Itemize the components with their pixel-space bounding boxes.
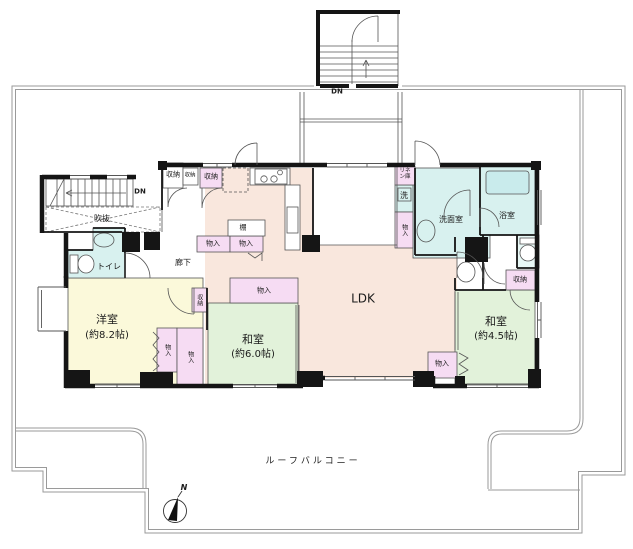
entrance-door bbox=[415, 141, 440, 165]
stairs-down-label: DN bbox=[331, 88, 343, 97]
storage-label-monoire: 物入 bbox=[239, 240, 253, 249]
room-label-rouka: 廊下 bbox=[175, 258, 191, 268]
basin-icon bbox=[457, 262, 475, 282]
closet-door bbox=[168, 188, 187, 207]
storage-label-shuno: 収納 bbox=[184, 173, 195, 180]
kitchen-door bbox=[235, 143, 257, 165]
shelf-label: 棚 bbox=[240, 224, 247, 233]
room-label-senmenshitsu: 洗面室 bbox=[439, 215, 463, 225]
storage-label-monoire: 物入 bbox=[186, 351, 194, 363]
compass-north-label: N bbox=[181, 483, 188, 493]
storage-label-monoire: 物入 bbox=[257, 287, 271, 296]
room-label-yoshitsu: 洋室 bbox=[96, 313, 118, 327]
room-label-yokushitsu: 浴室 bbox=[499, 211, 515, 221]
storage-label-shuno: 収納 bbox=[166, 171, 180, 180]
room-size-yoshitsu: (約8.2帖) bbox=[85, 330, 129, 343]
room-label-ldk: LDK bbox=[351, 292, 375, 307]
room-label-fukinuke: 吹抜 bbox=[94, 214, 110, 224]
room-label-washer: 洗 bbox=[400, 191, 408, 201]
room-size-washitsu6: (約6.0帖) bbox=[231, 349, 275, 362]
room-label-toilet: トイレ bbox=[97, 262, 121, 272]
exterior-stairs bbox=[300, 8, 402, 165]
toilet2-door bbox=[484, 263, 505, 284]
storage-label-monoire: 物入 bbox=[435, 360, 449, 369]
room-size-washitsu45: (約4.5帖) bbox=[474, 331, 518, 344]
toilet-icon bbox=[520, 238, 536, 261]
storage-label-shuno: 収納 bbox=[195, 294, 203, 306]
room-label-linen: リネン庫 bbox=[397, 169, 413, 181]
toilet-door bbox=[125, 253, 150, 278]
storage-label-monoire: 物入 bbox=[206, 240, 220, 249]
toilet-icon bbox=[70, 255, 94, 273]
floor-plan: LDK 洋室 (約8.2帖) 和室 (約6.0帖) 和室 (約4.5帖) トイレ… bbox=[0, 0, 633, 549]
room-label-washitsu6: 和室 bbox=[242, 333, 264, 347]
storage-label-monoire: 物入 bbox=[400, 224, 408, 236]
storage-label-monoire: 物入 bbox=[163, 344, 171, 356]
interior-stairs bbox=[46, 179, 133, 206]
roof-balcony-label: ルーフバルコニー bbox=[265, 456, 360, 467]
bathtub-icon bbox=[486, 171, 529, 194]
compass-icon bbox=[164, 491, 187, 523]
storage-label-shuno: 収納 bbox=[513, 276, 527, 285]
stairs-down-label: DN bbox=[134, 188, 146, 197]
room-label-washitsu45: 和室 bbox=[485, 315, 507, 329]
storage-label-shuno: 収納 bbox=[204, 173, 218, 182]
